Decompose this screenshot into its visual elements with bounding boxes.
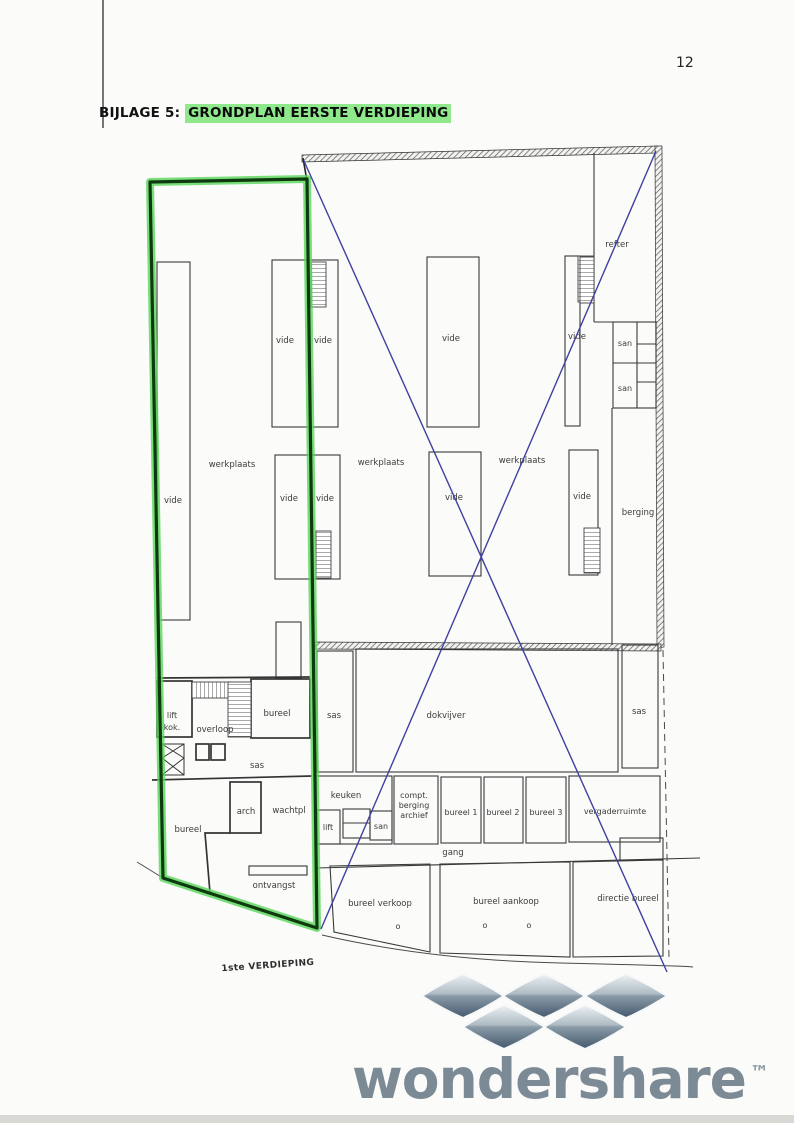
watermark-brand: wondershare™	[352, 1052, 769, 1107]
room-label-vide: vide	[314, 336, 332, 346]
room-label-arch: arch	[237, 807, 256, 817]
room-label-dokvijver: dokvijver	[426, 711, 466, 721]
room-label-compt: compt.	[400, 791, 428, 800]
room-label-keuken: keuken	[331, 791, 361, 801]
room-label-vide: vide	[164, 496, 182, 506]
hall-outer-walls	[302, 146, 664, 651]
room-label-san: san	[618, 384, 632, 393]
room-label-compt: archief	[400, 811, 428, 820]
room-label-vide: vide	[276, 336, 294, 346]
room-label-san: san	[618, 339, 632, 348]
room-label-bureel2: bureel 2	[487, 808, 520, 817]
room-label-lift: lift	[323, 823, 333, 832]
door-marker: o	[483, 921, 488, 930]
scan-artifact-bottom-edge	[0, 1115, 794, 1123]
staircases	[192, 256, 600, 737]
scanned-document-page: 12 BIJLAGE 5: GRONDPLAN EERSTE VERDIEPIN…	[0, 0, 794, 1123]
room-label-san: san	[374, 822, 388, 831]
room-label-vide: vide	[573, 492, 591, 502]
room-label-sas: sas	[327, 711, 342, 721]
room-label-vide: vide	[280, 494, 298, 504]
partition-walls	[157, 153, 700, 957]
room-label-sas: sas	[632, 707, 647, 717]
room-label-vide: vide	[442, 334, 460, 344]
room-label-directie-bureel: directie bureel	[597, 894, 659, 904]
room-label-lift-kok: kok.	[164, 723, 180, 732]
trademark-symbol: ™	[750, 1062, 769, 1084]
room-label-bureel1: bureel 1	[445, 808, 478, 817]
room-label-werkplaats: werkplaats	[358, 458, 405, 468]
room-label-overloop: overloop	[196, 725, 233, 735]
room-label-bureel3: bureel 3	[530, 808, 563, 817]
room-label-bureel-verkoop: bureel verkoop	[348, 899, 412, 909]
room-label-bureel: bureel	[175, 825, 202, 835]
room-label-compt: berging	[399, 801, 430, 810]
room-label-bureel: bureel	[264, 709, 291, 719]
room-label-ontvangst: ontvangst	[253, 881, 296, 891]
room-label-lift-kok: lift	[167, 711, 177, 720]
watermark-brand-text: wondershare	[352, 1047, 746, 1111]
room-label-berging: berging	[622, 508, 655, 518]
plan-caption: 1ste VERDIEPING	[221, 958, 315, 974]
room-label-bureel-aankoop: bureel aankoop	[473, 897, 539, 907]
room-label-werkplaats: werkplaats	[209, 460, 256, 470]
room-label-wachtpl: wachtpl	[272, 806, 305, 816]
room-label-sas: sas	[250, 761, 265, 771]
room-label-vide: vide	[316, 494, 334, 504]
room-label-gang: gang	[442, 848, 463, 858]
door-marker: o	[527, 921, 532, 930]
door-marker: o	[396, 922, 401, 931]
floor-plan-drawing: refter vide vide vide vide vide vide vid…	[0, 0, 794, 1123]
